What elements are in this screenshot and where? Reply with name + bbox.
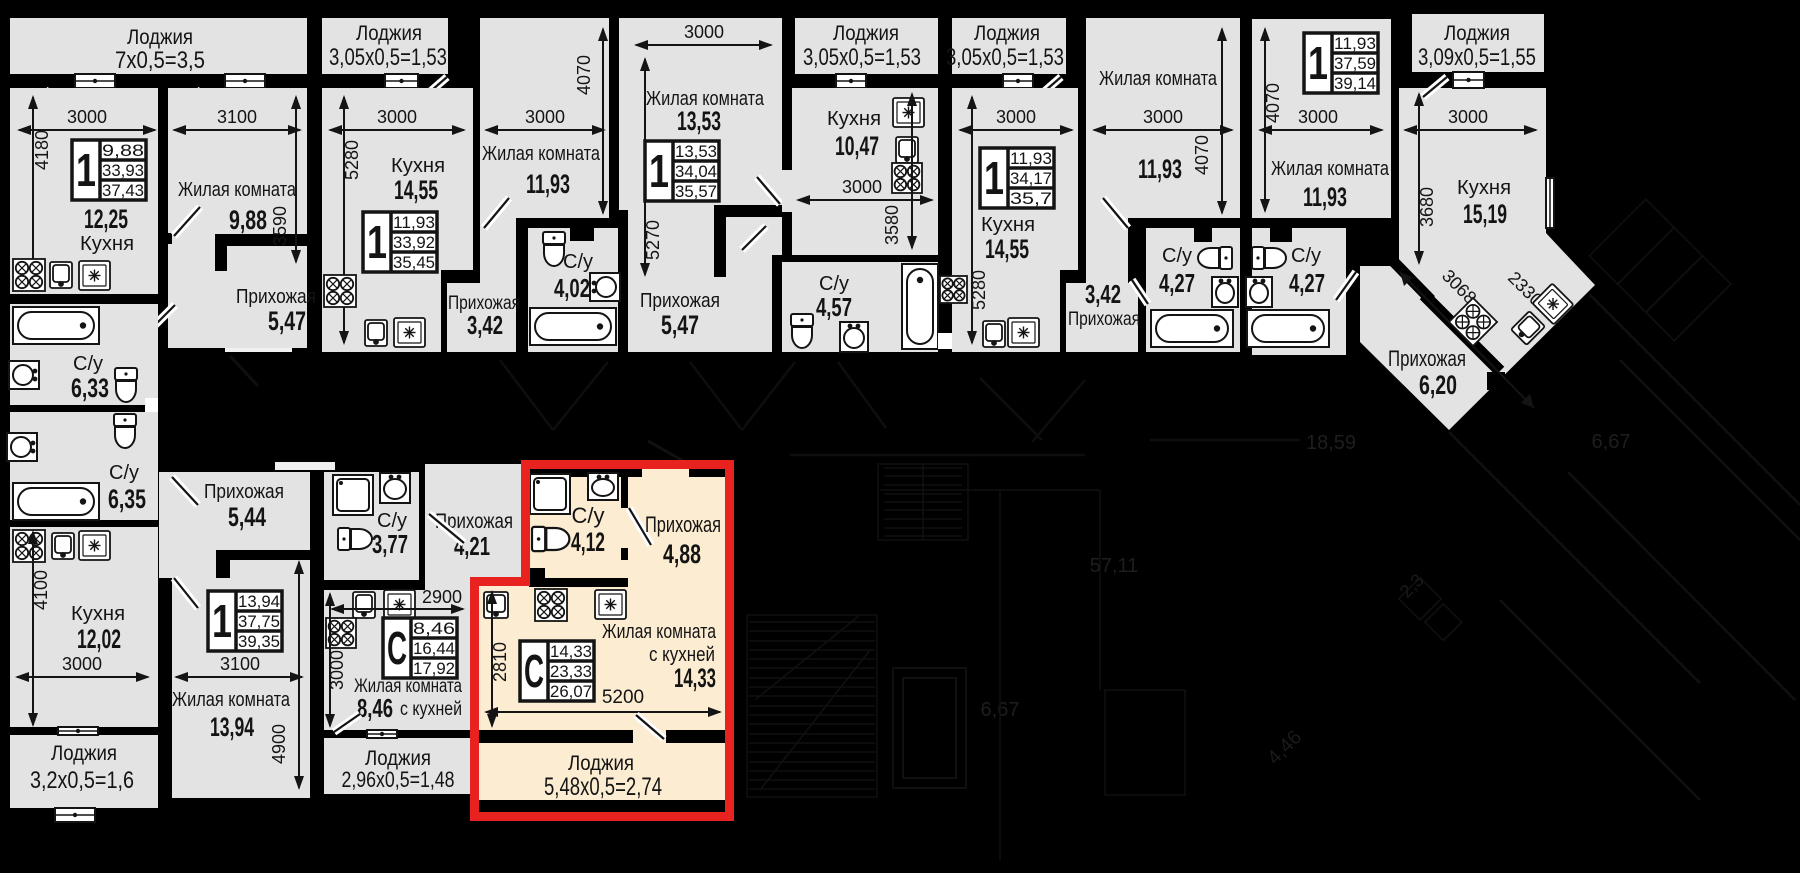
svg-text:Кухня: Кухня (391, 155, 445, 177)
svg-text:Прихожая: Прихожая (1068, 309, 1140, 330)
svg-text:Жилая комната: Жилая комната (482, 143, 601, 165)
svg-text:3000: 3000 (67, 107, 107, 127)
svg-text:3000: 3000 (842, 177, 882, 197)
svg-text:Кухня: Кухня (71, 603, 125, 625)
svg-text:Лоджия: Лоджия (833, 22, 899, 45)
svg-text:1: 1 (76, 144, 96, 196)
svg-text:2,96х0,5=1,48: 2,96х0,5=1,48 (342, 767, 455, 792)
svg-text:6,35: 6,35 (108, 484, 146, 514)
svg-text:13,53: 13,53 (677, 106, 721, 136)
svg-text:8,46: 8,46 (413, 619, 455, 638)
svg-text:12,02: 12,02 (77, 624, 121, 654)
svg-text:Лоджия: Лоджия (127, 26, 193, 49)
svg-text:3,42: 3,42 (1085, 279, 1121, 309)
svg-text:4180: 4180 (32, 130, 52, 170)
svg-text:11,93: 11,93 (526, 169, 570, 199)
svg-text:3,09х0,5=1,55: 3,09х0,5=1,55 (1418, 44, 1536, 71)
svg-text:37,75: 37,75 (238, 612, 280, 631)
svg-text:13,53: 13,53 (675, 142, 717, 161)
svg-text:С: С (524, 645, 544, 697)
svg-text:39,14: 39,14 (1334, 74, 1376, 93)
svg-text:37,43: 37,43 (102, 181, 144, 200)
svg-text:3000: 3000 (377, 107, 417, 127)
svg-text:4100: 4100 (31, 570, 51, 610)
svg-text:Жилая комната: Жилая комната (602, 621, 717, 643)
svg-text:35,57: 35,57 (675, 182, 717, 201)
svg-text:Кухня: Кухня (80, 233, 134, 255)
svg-text:Кухня: Кухня (981, 214, 1035, 236)
svg-text:3000: 3000 (1143, 107, 1183, 127)
svg-text:8,46: 8,46 (357, 693, 393, 723)
svg-text:С: С (387, 622, 407, 674)
svg-text:С/у: С/у (1291, 245, 1321, 267)
svg-text:2900: 2900 (422, 587, 462, 607)
svg-text:Кухня: Кухня (827, 108, 881, 130)
svg-text:3000: 3000 (996, 107, 1036, 127)
svg-text:5280: 5280 (969, 270, 989, 310)
svg-text:4,57: 4,57 (816, 292, 852, 322)
svg-text:5270: 5270 (643, 220, 663, 260)
svg-text:Лоджия: Лоджия (51, 742, 117, 765)
svg-text:13,94: 13,94 (238, 592, 280, 611)
svg-text:5,48х0,5=2,74: 5,48х0,5=2,74 (544, 773, 662, 801)
svg-text:3590: 3590 (270, 206, 290, 246)
svg-text:Кухня: Кухня (1457, 177, 1511, 199)
svg-text:Лоджия: Лоджия (1444, 22, 1510, 45)
svg-text:1: 1 (649, 145, 669, 197)
svg-text:11,93: 11,93 (1138, 154, 1182, 184)
svg-text:Жилая комната: Жилая комната (178, 179, 297, 201)
svg-text:11,93: 11,93 (1303, 182, 1347, 212)
svg-text:1: 1 (1308, 37, 1328, 89)
svg-text:5280: 5280 (342, 140, 362, 180)
svg-text:11,93: 11,93 (1334, 34, 1376, 53)
svg-text:26,07: 26,07 (550, 682, 592, 701)
svg-text:3000: 3000 (62, 654, 102, 674)
svg-text:С/у: С/у (572, 503, 605, 528)
svg-text:16,44: 16,44 (413, 639, 455, 658)
svg-text:6,20: 6,20 (1419, 370, 1457, 400)
svg-text:5,47: 5,47 (268, 306, 306, 336)
svg-text:Лоджия: Лоджия (356, 22, 422, 45)
svg-text:14,55: 14,55 (985, 234, 1029, 264)
svg-text:6,33: 6,33 (71, 373, 109, 403)
svg-text:15,19: 15,19 (1463, 199, 1507, 229)
svg-text:34,17: 34,17 (1010, 169, 1052, 188)
svg-text:6,67: 6,67 (1592, 431, 1631, 453)
svg-text:3580: 3580 (882, 205, 902, 245)
svg-text:Жилая комната: Жилая комната (1099, 68, 1218, 90)
svg-text:3,42: 3,42 (467, 310, 503, 340)
svg-text:7х0,5=3,5: 7х0,5=3,5 (115, 47, 205, 74)
svg-text:5,47: 5,47 (661, 310, 699, 340)
svg-text:3100: 3100 (220, 654, 260, 674)
svg-text:Жилая комната: Жилая комната (1271, 158, 1390, 180)
svg-text:34,04: 34,04 (675, 162, 717, 181)
svg-text:14,33: 14,33 (674, 663, 716, 693)
svg-text:33,93: 33,93 (102, 161, 144, 180)
svg-text:3000: 3000 (1448, 107, 1488, 127)
svg-text:3,05х0,5=1,53: 3,05х0,5=1,53 (329, 44, 447, 71)
svg-text:3,05х0,5=1,53: 3,05х0,5=1,53 (946, 44, 1064, 71)
svg-text:С/у: С/у (73, 353, 103, 375)
svg-text:4070: 4070 (574, 55, 594, 95)
svg-text:4,02: 4,02 (554, 273, 590, 303)
svg-text:4,27: 4,27 (1159, 268, 1195, 298)
svg-text:14,33: 14,33 (550, 642, 592, 661)
svg-text:с кухней: с кухней (400, 699, 462, 720)
svg-text:С/у: С/у (109, 462, 139, 484)
svg-text:9,88: 9,88 (102, 141, 144, 160)
svg-text:2810: 2810 (490, 642, 510, 682)
svg-text:11,93: 11,93 (1010, 149, 1052, 168)
svg-text:33,92: 33,92 (393, 233, 435, 252)
svg-text:4,27: 4,27 (1289, 268, 1325, 298)
svg-text:18,59: 18,59 (1306, 432, 1356, 454)
svg-text:4,88: 4,88 (663, 539, 701, 569)
svg-text:11,93: 11,93 (393, 213, 435, 232)
svg-text:Прихожая: Прихожая (1388, 346, 1466, 371)
svg-text:3680: 3680 (1417, 187, 1437, 227)
svg-text:3000: 3000 (525, 107, 565, 127)
svg-text:1: 1 (984, 152, 1004, 204)
svg-text:4070: 4070 (1192, 135, 1212, 175)
svg-text:14,55: 14,55 (394, 175, 438, 205)
svg-text:10,47: 10,47 (835, 131, 879, 161)
svg-text:12,25: 12,25 (84, 204, 128, 234)
svg-text:Прихожая: Прихожая (645, 512, 721, 537)
svg-text:3100: 3100 (217, 107, 257, 127)
svg-text:3000: 3000 (684, 22, 724, 42)
svg-text:Прихожая: Прихожая (204, 481, 284, 503)
svg-text:Прихожая: Прихожая (236, 286, 316, 308)
svg-text:4,12: 4,12 (571, 527, 605, 557)
svg-text:3,2х0,5=1,6: 3,2х0,5=1,6 (30, 767, 134, 794)
svg-text:Прихожая: Прихожая (640, 290, 720, 312)
svg-text:39,35: 39,35 (238, 632, 280, 651)
svg-text:5200: 5200 (602, 687, 644, 708)
svg-text:Жилая комната: Жилая комната (172, 689, 291, 711)
svg-text:5,44: 5,44 (228, 502, 266, 532)
svg-text:3,05х0,5=1,53: 3,05х0,5=1,53 (803, 44, 921, 71)
svg-text:3000: 3000 (327, 650, 347, 690)
svg-text:35,45: 35,45 (393, 253, 435, 272)
svg-text:23,33: 23,33 (550, 662, 592, 681)
svg-text:3,77: 3,77 (372, 529, 408, 559)
svg-text:С/у: С/у (563, 251, 593, 273)
svg-text:4900: 4900 (269, 724, 289, 764)
svg-text:Лоджия: Лоджия (974, 22, 1040, 45)
svg-text:3000: 3000 (1298, 107, 1338, 127)
svg-text:4070: 4070 (1263, 83, 1283, 123)
svg-text:57,11: 57,11 (1090, 555, 1139, 577)
svg-text:35,7: 35,7 (1010, 189, 1052, 208)
svg-text:Лоджия: Лоджия (568, 752, 634, 775)
svg-text:1: 1 (367, 216, 387, 268)
svg-text:С/у: С/у (1162, 245, 1192, 267)
svg-text:13,94: 13,94 (210, 712, 254, 742)
svg-text:9,88: 9,88 (229, 205, 267, 235)
svg-text:37,59: 37,59 (1334, 54, 1376, 73)
svg-text:1: 1 (212, 595, 232, 647)
